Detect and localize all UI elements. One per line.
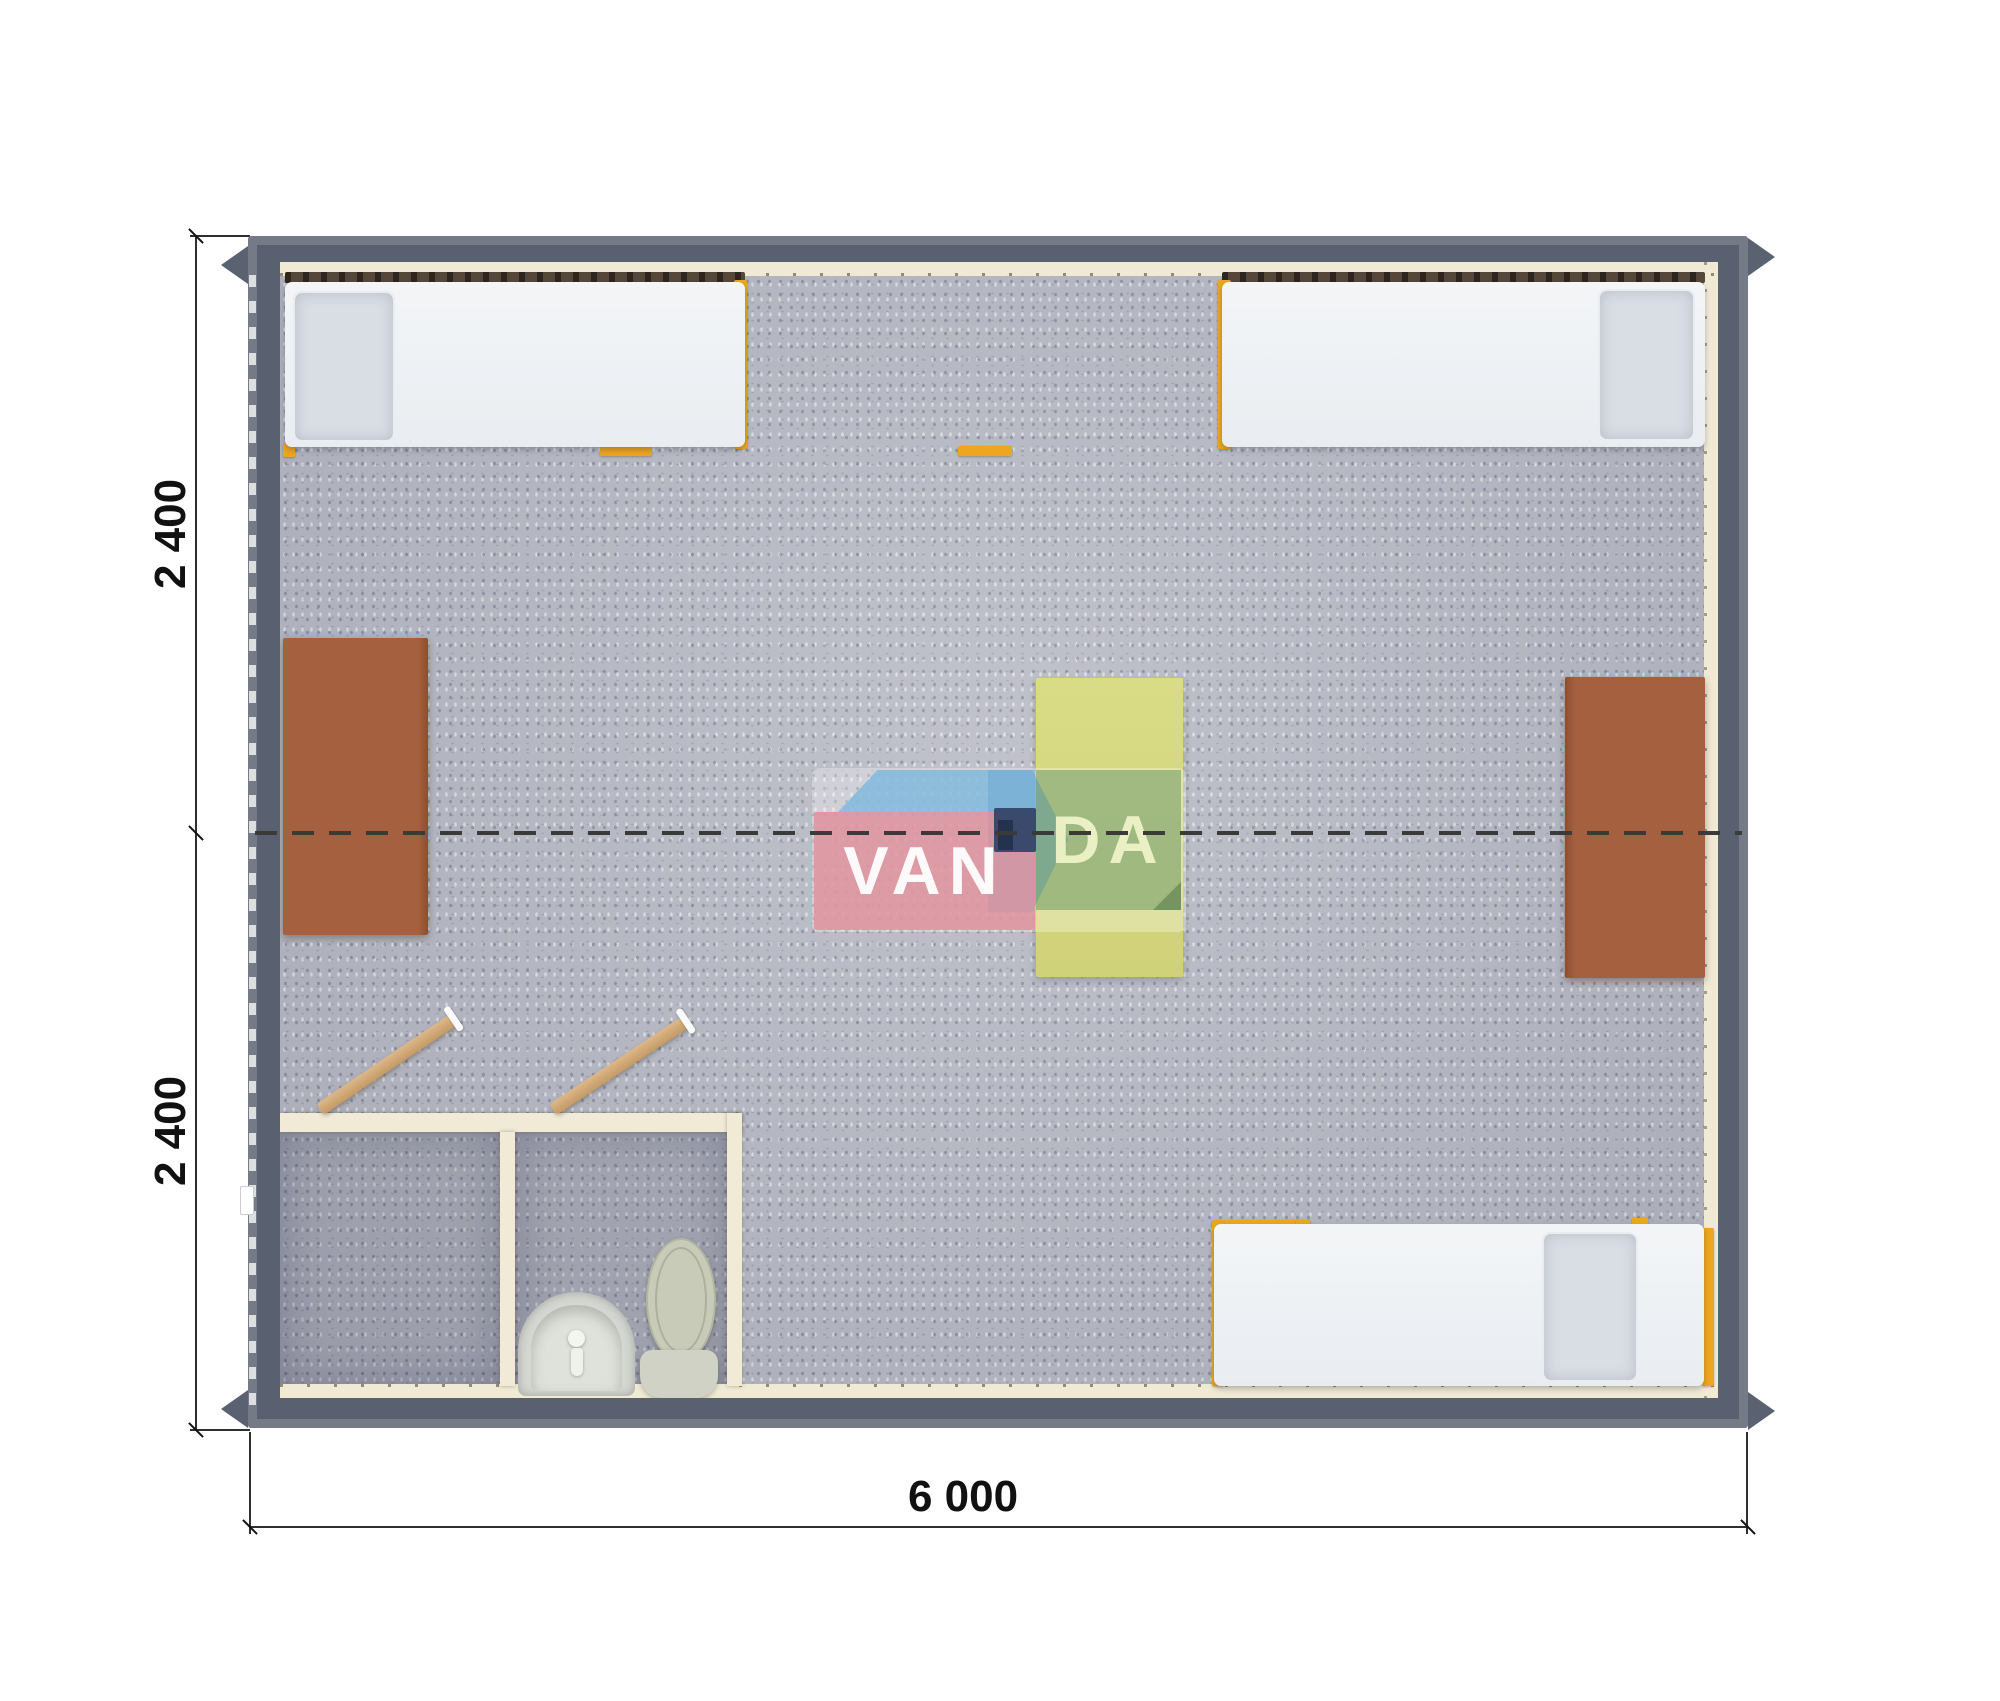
pillow-top-left — [293, 291, 395, 442]
bed-frame-foot-bar — [600, 446, 652, 456]
faucet-handle — [571, 1348, 583, 1376]
logo-navy-inner — [998, 820, 1013, 850]
bathroom-wall-right — [727, 1113, 742, 1386]
desk-right — [1565, 677, 1705, 978]
bed-frame-foot-bar — [958, 446, 1012, 456]
pillow-bottom-right — [1542, 1232, 1638, 1382]
logo-fold-corner — [1153, 882, 1181, 910]
dimension-label-bottom: 6 000 — [908, 1472, 1018, 1522]
toilet-lid-rim — [655, 1247, 707, 1353]
floor-plan-canvas: 2 400 2 400 6 000 — [0, 0, 2000, 1701]
corner-lug-bottom-left — [221, 1390, 248, 1428]
watermark-text-van: VAN — [843, 837, 1006, 905]
dimension-line-bottom — [250, 1526, 1748, 1528]
logo-navy-square — [994, 808, 1036, 852]
logo-green-panel: DA — [1036, 770, 1181, 910]
sink — [518, 1292, 635, 1396]
faucet-icon — [568, 1330, 585, 1347]
corner-lug-top-left — [221, 246, 248, 284]
dimension-label-left-bottom: 2 400 — [146, 1076, 196, 1186]
dimension-extension-bottom-start — [249, 1432, 251, 1534]
bathroom-wall-divider — [500, 1132, 515, 1386]
dimension-label-left-top: 2 400 — [146, 479, 196, 589]
corner-lug-top-right — [1748, 238, 1775, 276]
centerline-dashed — [255, 831, 1742, 835]
left-wall-door-mark — [240, 1186, 254, 1215]
corner-lug-bottom-right — [1748, 1392, 1775, 1430]
interior-floor: VAN DA — [280, 262, 1718, 1398]
pillow-top-right — [1598, 289, 1695, 441]
toilet-lid — [646, 1238, 716, 1362]
bathroom-shower-floor — [280, 1132, 500, 1384]
toilet-tank — [640, 1350, 718, 1398]
wall-panel-seams-left — [249, 275, 256, 1415]
dimension-extension-bottom-end — [1746, 1432, 1748, 1534]
bathroom-wall-horizontal — [280, 1113, 742, 1132]
watermark-text-da: DA — [1051, 806, 1165, 874]
desk-left — [283, 638, 428, 935]
